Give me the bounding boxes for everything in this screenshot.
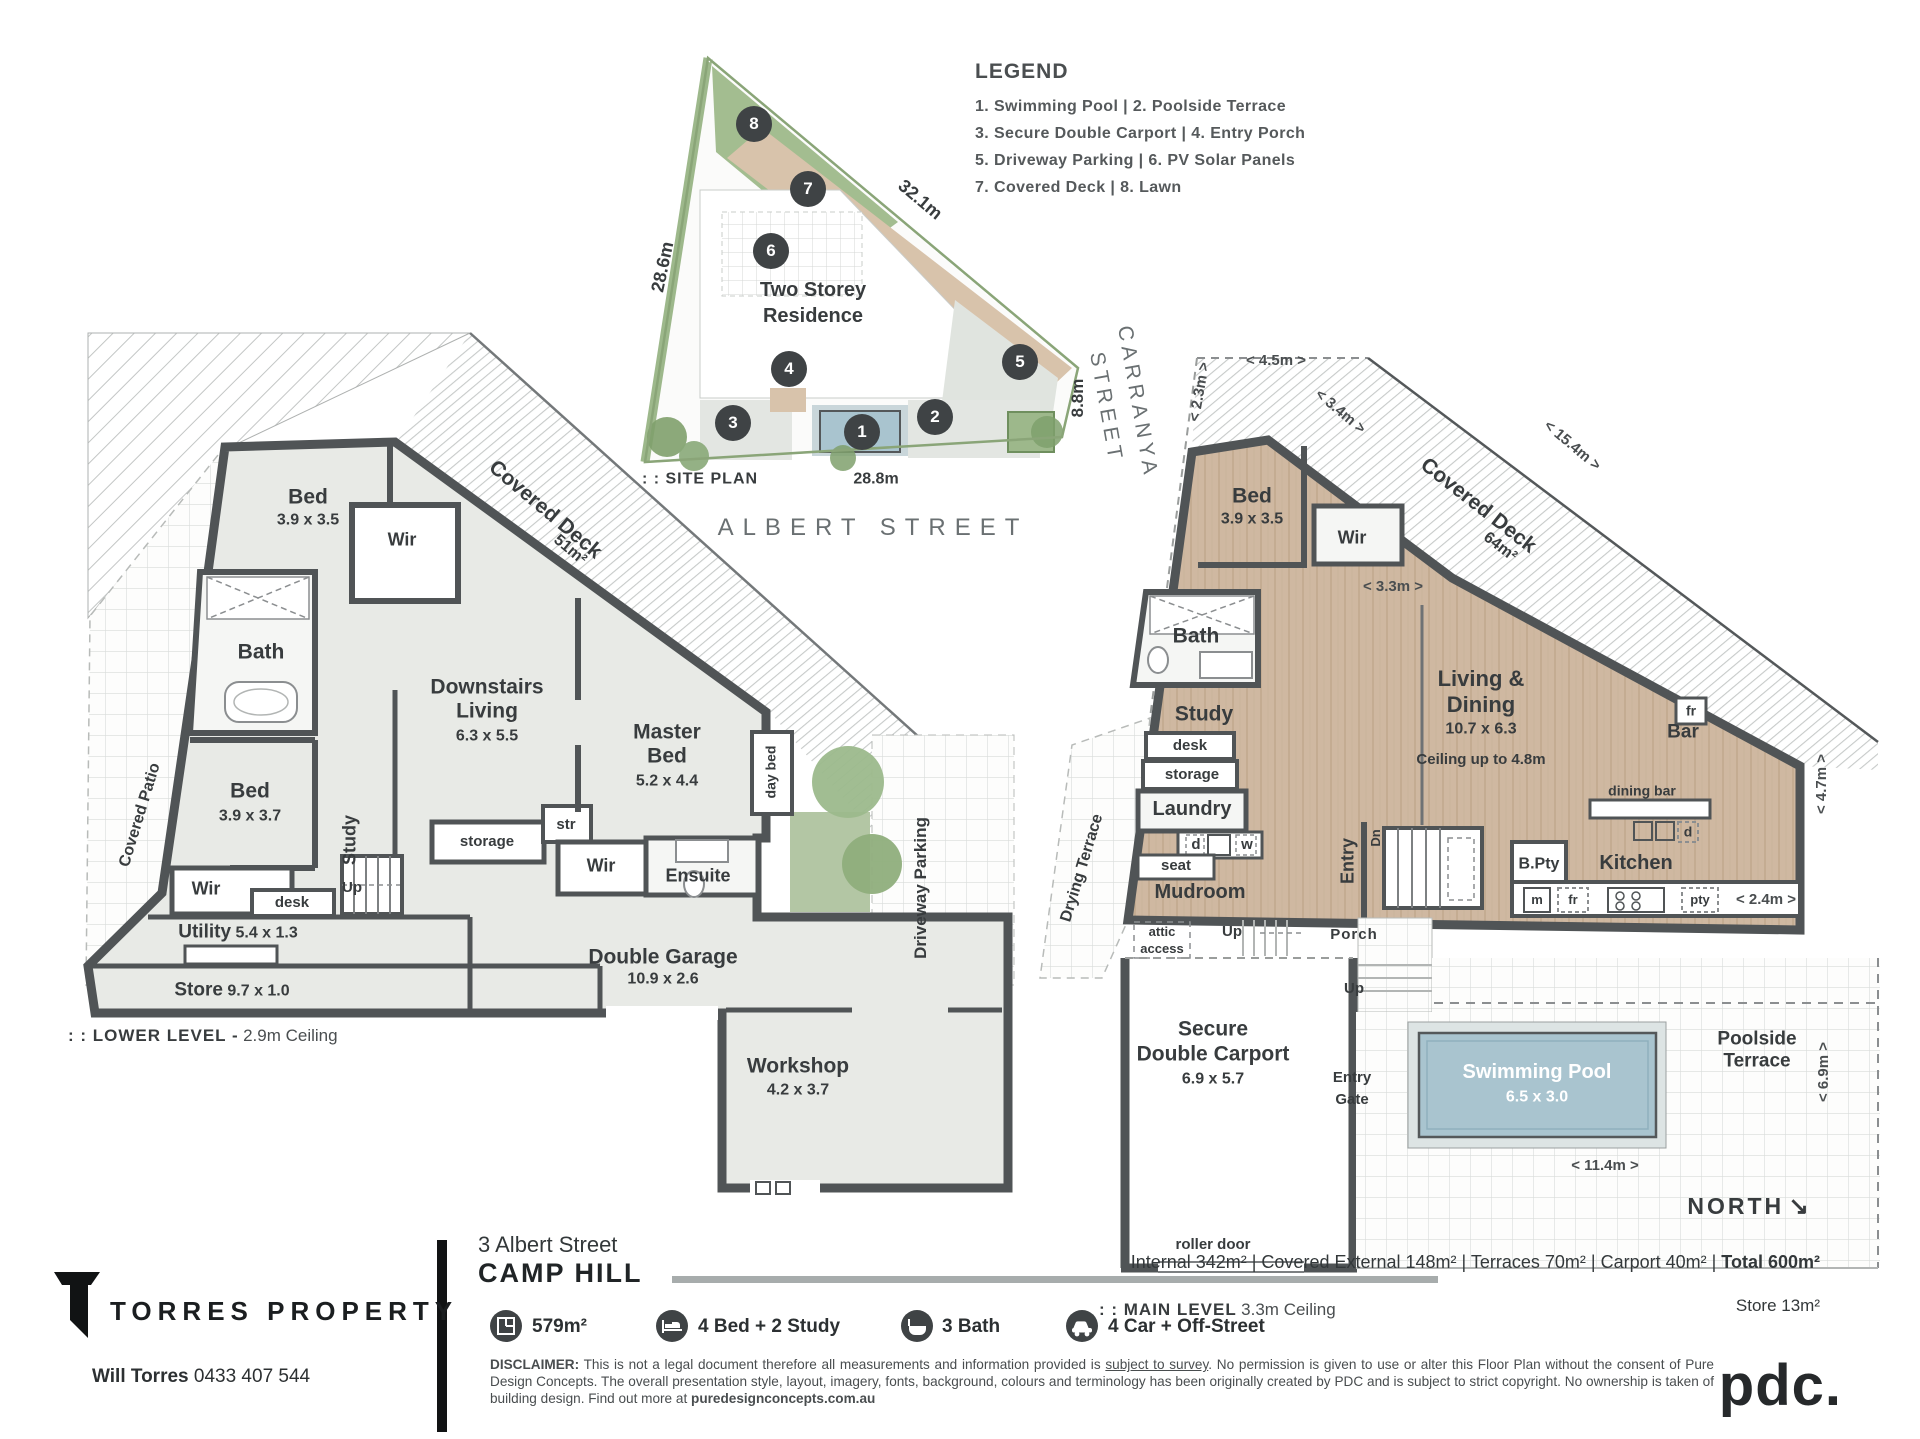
lower-storage-label: storage	[460, 834, 514, 850]
legend: LEGEND 1. Swimming Pool | 2. Poolside Te…	[975, 60, 1305, 206]
main-entry-gate-label-1: Entry	[1333, 1070, 1371, 1086]
main-bed-dim: 3.9 x 3.5	[1221, 510, 1283, 527]
site-marker-carport: 3	[715, 405, 751, 441]
main-carport-label-2: Double Carport	[1137, 1044, 1290, 1067]
main-carport-dim: 6.9 x 5.7	[1182, 1070, 1244, 1087]
footer-rule	[672, 1276, 1438, 1283]
address-suburb: CAMP HILL	[478, 1258, 643, 1289]
site-marker-solar: 6	[753, 233, 789, 269]
main-dim-11-4: < 11.4m >	[1571, 1158, 1639, 1174]
agent-phone: 0433 407 544	[189, 1366, 311, 1387]
stat-beds: 4 Bed + 2 Study	[698, 1310, 840, 1344]
main-dishwasher2-label: d	[1684, 824, 1693, 839]
main-study-label: Study	[1175, 704, 1233, 727]
main-laundry-label: Laundry	[1153, 799, 1232, 821]
lower-garage-label: Double Garage	[588, 947, 737, 970]
disclaimer-label: DISCLAIMER:	[490, 1357, 579, 1372]
lower-utility-dim: 5.4 x 1.3	[235, 925, 297, 942]
lower-store-name: Store	[174, 980, 223, 1001]
lower-living-label-2: Living	[456, 701, 518, 724]
stat-cars: 4 Car + Off-Street	[1108, 1310, 1265, 1344]
lower-master-label-2: Bed	[647, 746, 687, 769]
lower-desk-label: desk	[275, 895, 309, 911]
lower-utility-name: Utility	[178, 922, 231, 943]
main-dim-3-3: < 3.3m >	[1363, 579, 1423, 595]
address-street: 3 Albert Street	[478, 1232, 617, 1258]
lower-bath-label: Bath	[238, 642, 285, 665]
main-wir-label: Wir	[1338, 528, 1367, 547]
main-kitchen-label: Kitchen	[1599, 853, 1672, 875]
lower-bed2-label: Bed	[230, 781, 270, 804]
lower-str-label: str	[556, 817, 575, 833]
north-label: NORTH	[1687, 1193, 1784, 1219]
main-entry-gate-label-2: Gate	[1335, 1092, 1368, 1108]
stat-floor-area-value: 579m²	[532, 1316, 587, 1338]
disclaimer: DISCLAIMER: This is not a legal document…	[490, 1356, 1714, 1407]
floorplan-icon	[490, 1310, 522, 1342]
main-up1-label: Up	[1222, 924, 1242, 940]
brand-wordmark: TORRES PROPERTY	[110, 1296, 458, 1327]
main-pool-dim: 6.5 x 3.0	[1506, 1088, 1568, 1105]
main-fridge1-label: fr	[1686, 703, 1696, 718]
stat-beds-value: 4 Bed + 2 Study	[698, 1316, 840, 1338]
site-marker-lawn: 8	[736, 106, 772, 142]
lower-wir1-label: Wir	[388, 530, 417, 549]
main-poolside-label-1: Poolside	[1717, 1030, 1796, 1051]
main-bar-label: Bar	[1667, 723, 1699, 744]
site-plan-label: : : SITE PLAN	[642, 470, 758, 487]
main-pool-label: Swimming Pool	[1463, 1062, 1612, 1084]
main-dn-label: Dn	[1369, 829, 1383, 846]
main-washer-label: w	[1241, 837, 1253, 853]
store-area-note: Store 13m²	[1736, 1296, 1820, 1316]
disclaimer-website: puredesignconcepts.com.au	[691, 1391, 875, 1406]
lower-level-ceiling: 2.9m Ceiling	[243, 1026, 338, 1045]
main-dim-6-9: < 6.9m >	[1816, 1042, 1832, 1102]
lower-up-label: Up	[342, 880, 362, 896]
legend-title: LEGEND	[975, 60, 1305, 84]
main-butlers-pantry-label: B.Pty	[1519, 855, 1560, 872]
main-desk-label: desk	[1173, 738, 1207, 754]
main-living-ceiling-note: Ceiling up to 4.8m	[1416, 752, 1545, 768]
site-dim-bottom: 28.8m	[853, 470, 898, 487]
bed-icon	[656, 1310, 688, 1342]
legend-line: 3. Secure Double Carport | 4. Entry Porc…	[975, 125, 1305, 143]
main-roller-door-label: roller door	[1175, 1237, 1250, 1253]
footer-divider-bar	[437, 1240, 447, 1432]
albert-street-label: ALBERT STREET	[718, 515, 1029, 541]
disclaimer-underlined: subject to survey	[1105, 1357, 1208, 1372]
main-mudroom-label: Mudroom	[1154, 882, 1245, 904]
bath-icon	[901, 1310, 933, 1342]
pdc-logo: pdc.	[1719, 1352, 1842, 1419]
lower-master-label-1: Master	[633, 722, 701, 745]
lower-driveway-parking-label: Driveway Parking	[912, 817, 930, 959]
lower-garage-dim: 10.9 x 2.6	[627, 970, 698, 987]
lower-level-name: : : LOWER LEVEL -	[68, 1026, 239, 1045]
stat-floor-area: 579m²	[532, 1310, 587, 1344]
north-indicator: NORTH ↘	[1687, 1194, 1808, 1220]
main-attic-label-2: access	[1140, 942, 1183, 956]
main-attic-label-1: attic	[1149, 925, 1176, 939]
site-dim-right: 8.8m	[1069, 379, 1087, 418]
agent-name: Will Torres	[92, 1366, 189, 1387]
legend-line: 5. Driveway Parking | 6. PV Solar Panels	[975, 152, 1305, 170]
lower-living-dim: 6.3 x 5.5	[456, 727, 518, 744]
main-living-label-2: Dining	[1447, 693, 1515, 717]
site-marker-deck: 7	[790, 171, 826, 207]
main-pantry-label: pty	[1690, 893, 1710, 907]
main-fridge2-label: fr	[1568, 893, 1577, 907]
lower-master-dim: 5.2 x 4.4	[636, 772, 698, 789]
main-bath-label: Bath	[1173, 626, 1220, 649]
lower-bed1-label: Bed	[288, 487, 328, 510]
lower-utility-label: Utility 5.4 x 1.3	[178, 923, 298, 944]
main-bed-label: Bed	[1232, 486, 1272, 509]
lower-workshop-dim: 4.2 x 3.7	[767, 1081, 829, 1098]
area-summary-text: Internal 342m² | Covered External 148m² …	[1131, 1252, 1722, 1272]
site-marker-pool: 1	[844, 414, 880, 450]
stat-cars-value: 4 Car + Off-Street	[1108, 1316, 1265, 1338]
main-entry-label: Entry	[1338, 838, 1357, 884]
main-living-dim: 10.7 x 6.3	[1445, 720, 1516, 737]
lower-store-dim: 9.7 x 1.0	[227, 983, 289, 1000]
lower-wir2-label: Wir	[192, 879, 221, 898]
main-poolside-label-2: Terrace	[1723, 1052, 1790, 1073]
agent-contact: Will Torres 0433 407 544	[92, 1366, 310, 1388]
torres-logo-icon	[54, 1272, 100, 1338]
lower-daybed-label: day bed	[763, 746, 778, 799]
lower-ensuite-label: Ensuite	[665, 866, 730, 885]
site-residence-label-2: Residence	[763, 306, 863, 328]
main-living-label-1: Living &	[1438, 667, 1525, 691]
disclaimer-text-1: This is not a legal document therefore a…	[579, 1357, 1105, 1372]
legend-line: 7. Covered Deck | 8. Lawn	[975, 179, 1305, 197]
lower-store-label: Store 9.7 x 1.0	[174, 981, 289, 1002]
main-dining-bar-label: dining bar	[1608, 783, 1676, 798]
main-carport-label-1: Secure	[1178, 1019, 1248, 1042]
area-summary: Internal 342m² | Covered External 148m² …	[1131, 1252, 1820, 1273]
floorplan-page: LEGEND 1. Swimming Pool | 2. Poolside Te…	[0, 0, 1920, 1439]
site-marker-entry-porch: 4	[771, 351, 807, 387]
lower-wir3-label: Wir	[587, 856, 616, 875]
lower-workshop-label: Workshop	[747, 1056, 849, 1079]
main-up2-label: Up	[1344, 981, 1364, 997]
car-icon	[1066, 1310, 1098, 1342]
site-marker-driveway: 5	[1002, 344, 1038, 380]
lower-bed1-dim: 3.9 x 3.5	[277, 511, 339, 528]
floorplan-drawing	[0, 0, 1920, 1439]
lower-living-label-1: Downstairs	[430, 677, 543, 700]
lower-bed2-dim: 3.9 x 3.7	[219, 807, 281, 824]
legend-line: 1. Swimming Pool | 2. Poolside Terrace	[975, 98, 1305, 116]
main-dim-2-4: < 2.4m >	[1736, 892, 1796, 908]
stat-baths: 3 Bath	[942, 1310, 1000, 1344]
main-dim-4-7: < 4.7m >	[1814, 754, 1830, 814]
main-dishwasher-label: d	[1191, 837, 1200, 853]
lower-level-graphic	[86, 333, 1014, 1196]
stat-baths-value: 3 Bath	[942, 1316, 1000, 1338]
lower-study-label: Study	[340, 815, 359, 865]
main-dim-4-5: < 4.5m >	[1246, 353, 1306, 369]
main-seat-label: seat	[1161, 858, 1191, 874]
main-porch-label: Porch	[1330, 927, 1378, 943]
site-residence-label-1: Two Storey	[760, 280, 866, 302]
main-microwave-label: m	[1531, 893, 1543, 907]
main-storage-label: storage	[1165, 767, 1219, 783]
site-marker-poolside: 2	[917, 399, 953, 435]
area-summary-total: Total 600m²	[1721, 1252, 1820, 1272]
north-arrow-icon: ↘	[1789, 1193, 1809, 1220]
lower-level-title: : : LOWER LEVEL - 2.9m Ceiling	[68, 1027, 338, 1045]
